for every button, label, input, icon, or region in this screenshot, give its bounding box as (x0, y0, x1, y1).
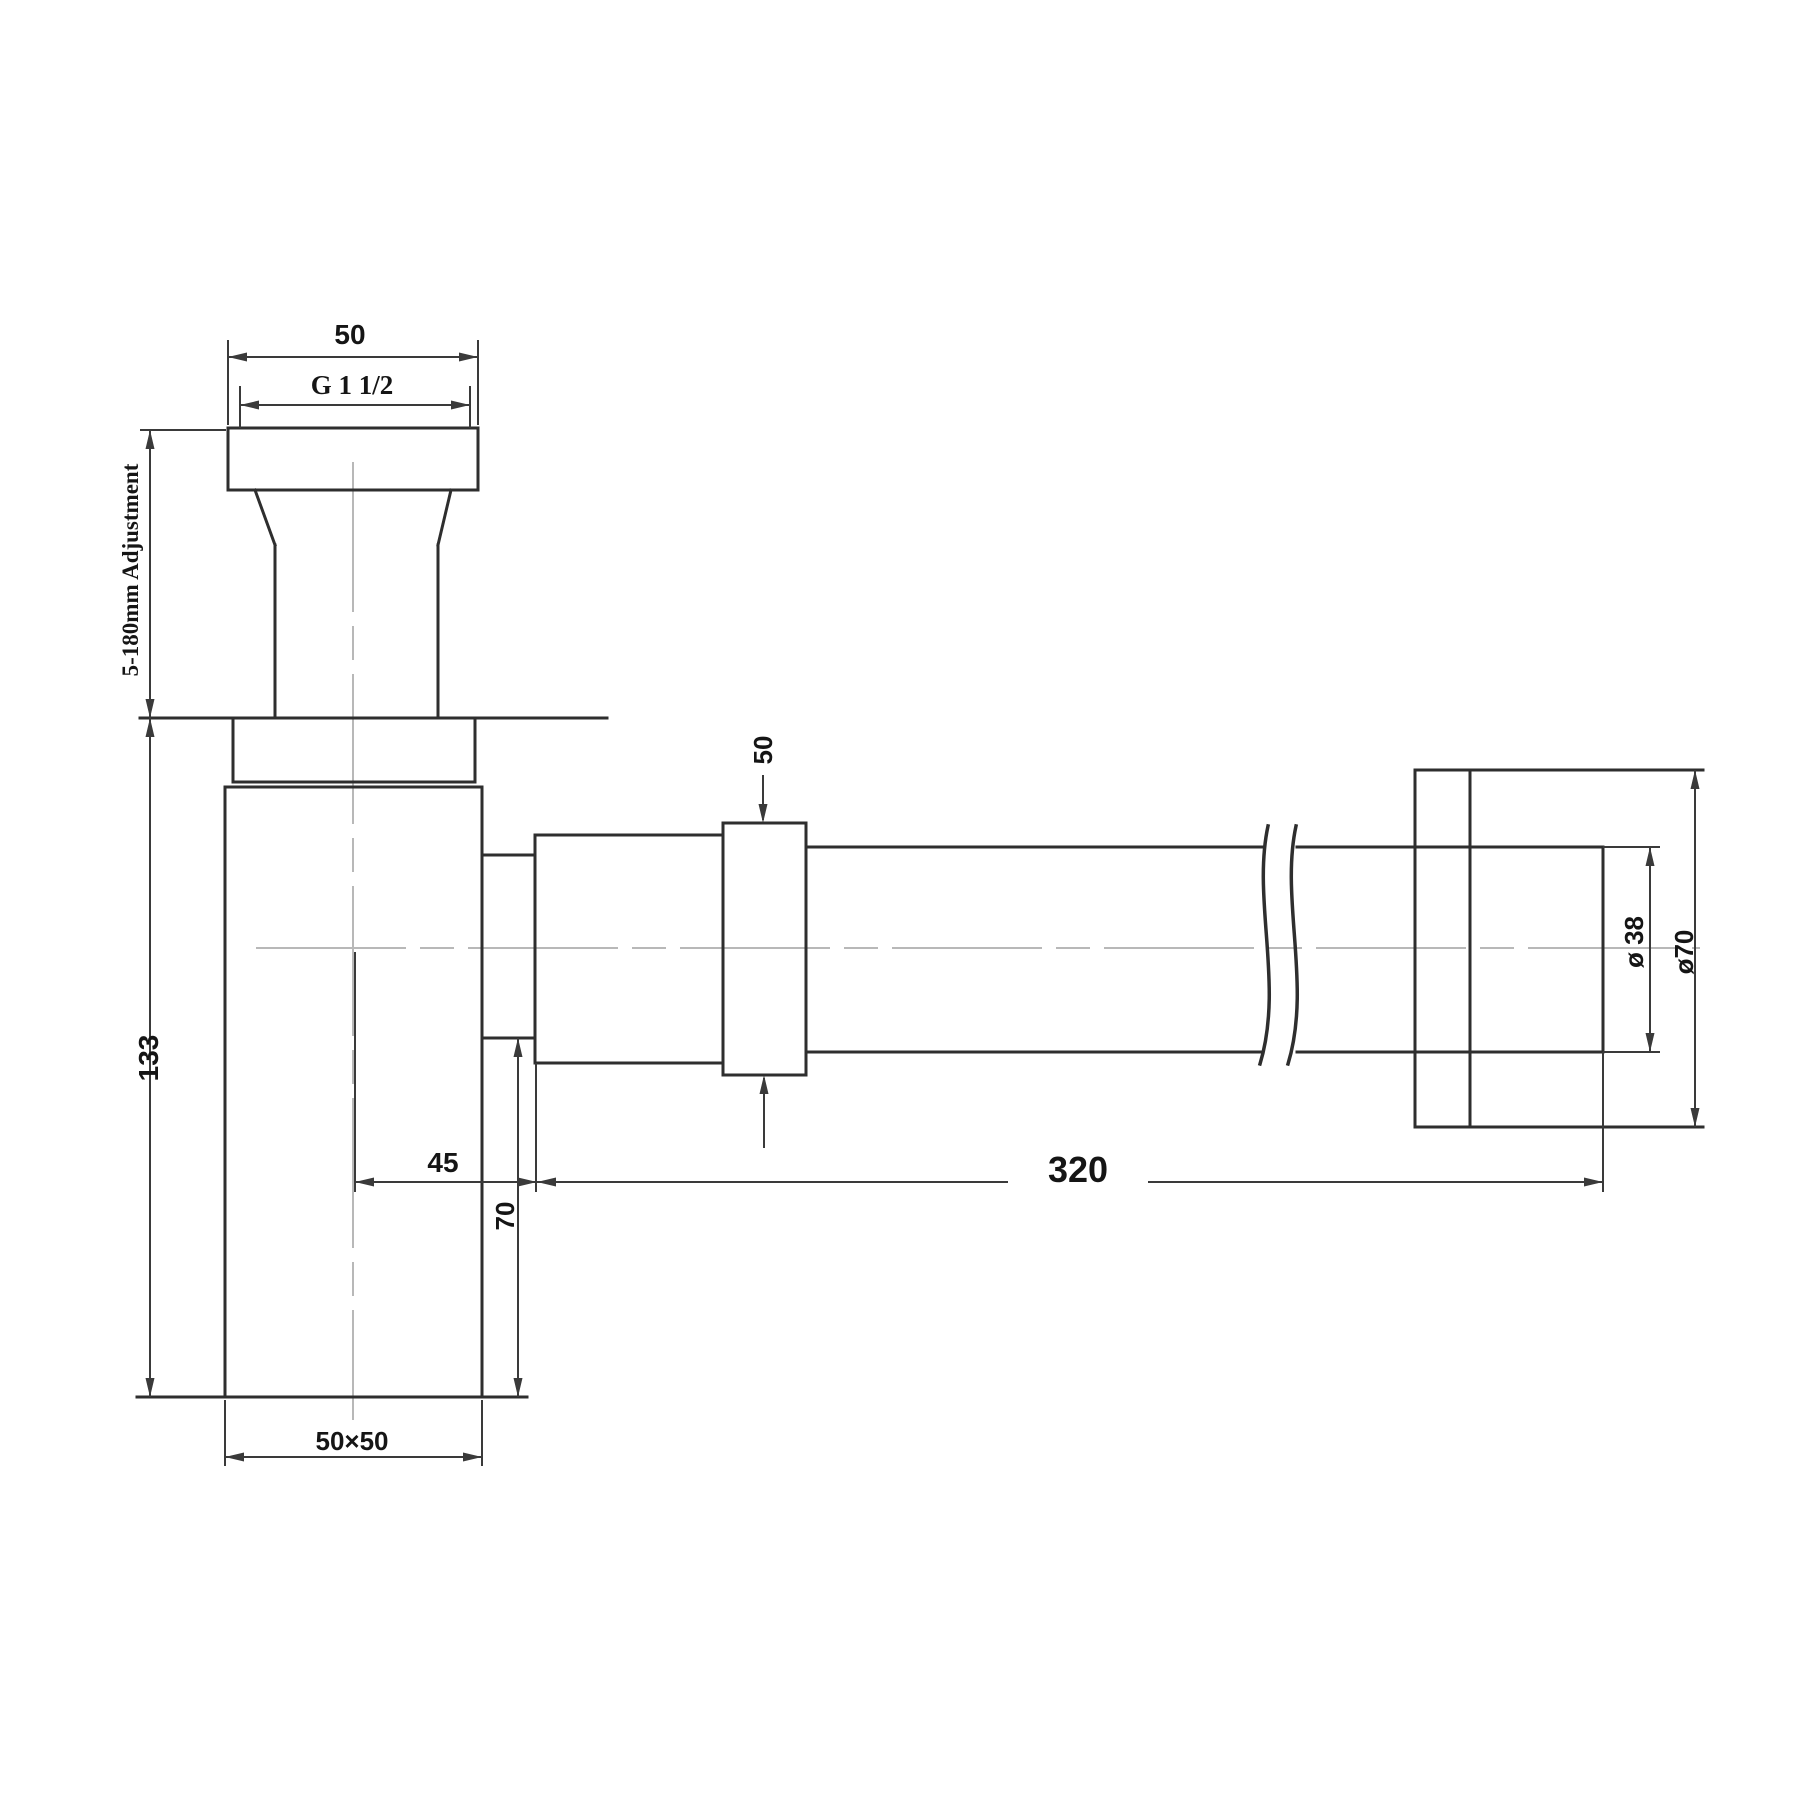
arrowhead (225, 1453, 244, 1462)
label-body-cross-section: 50×50 (315, 1426, 388, 1456)
arrowhead (459, 353, 478, 362)
arrowhead (759, 804, 768, 823)
label-height-adjustment: 5-180mm Adjustment (118, 463, 143, 676)
arrowhead (1584, 1178, 1603, 1187)
arrowhead (1646, 847, 1655, 866)
pipe-break-curve-1 (1260, 826, 1269, 1064)
technical-drawing-canvas: 50 G 1 1/2 5-180mm Adjustment 133 50×50 … (0, 0, 1800, 1800)
arrowhead (146, 699, 155, 718)
arrowhead (355, 1178, 374, 1187)
label-flange-diameter: ø70 (1669, 930, 1699, 975)
arrowhead (146, 1378, 155, 1397)
arrowhead (451, 401, 470, 410)
arrowhead (514, 1038, 523, 1057)
arrowhead (1691, 770, 1700, 789)
arrowhead (760, 1075, 769, 1094)
arrowhead (146, 430, 155, 449)
label-tube-diameter: ø 38 (1619, 916, 1649, 968)
label-tube-length: 320 (1048, 1149, 1108, 1190)
arrowhead (1691, 1108, 1700, 1127)
dimension-lines (140, 340, 1700, 1466)
arrowhead (514, 1378, 523, 1397)
arrowhead (518, 1178, 537, 1187)
label-outlet-offset: 45 (427, 1147, 458, 1178)
pipe-break-curve-2 (1288, 826, 1297, 1064)
label-collar-length: 50 (748, 736, 778, 765)
part-outline (137, 428, 1703, 1397)
tailpiece-taper-left (255, 490, 275, 545)
arrowhead (146, 718, 155, 737)
arrowhead (537, 1178, 556, 1187)
arrowhead (463, 1453, 482, 1462)
label-body-height: 133 (133, 1035, 164, 1082)
bottle-trap-drawing: 50 G 1 1/2 5-180mm Adjustment 133 50×50 … (0, 0, 1800, 1800)
centerlines (256, 462, 1700, 1420)
arrowhead (228, 353, 247, 362)
label-thread-size: G 1 1/2 (311, 370, 394, 400)
label-outlet-drop: 70 (490, 1202, 520, 1231)
tailpiece-taper-right (438, 490, 451, 545)
arrowhead (240, 401, 259, 410)
arrowhead (1646, 1033, 1655, 1052)
label-tailpiece-width: 50 (334, 319, 365, 350)
